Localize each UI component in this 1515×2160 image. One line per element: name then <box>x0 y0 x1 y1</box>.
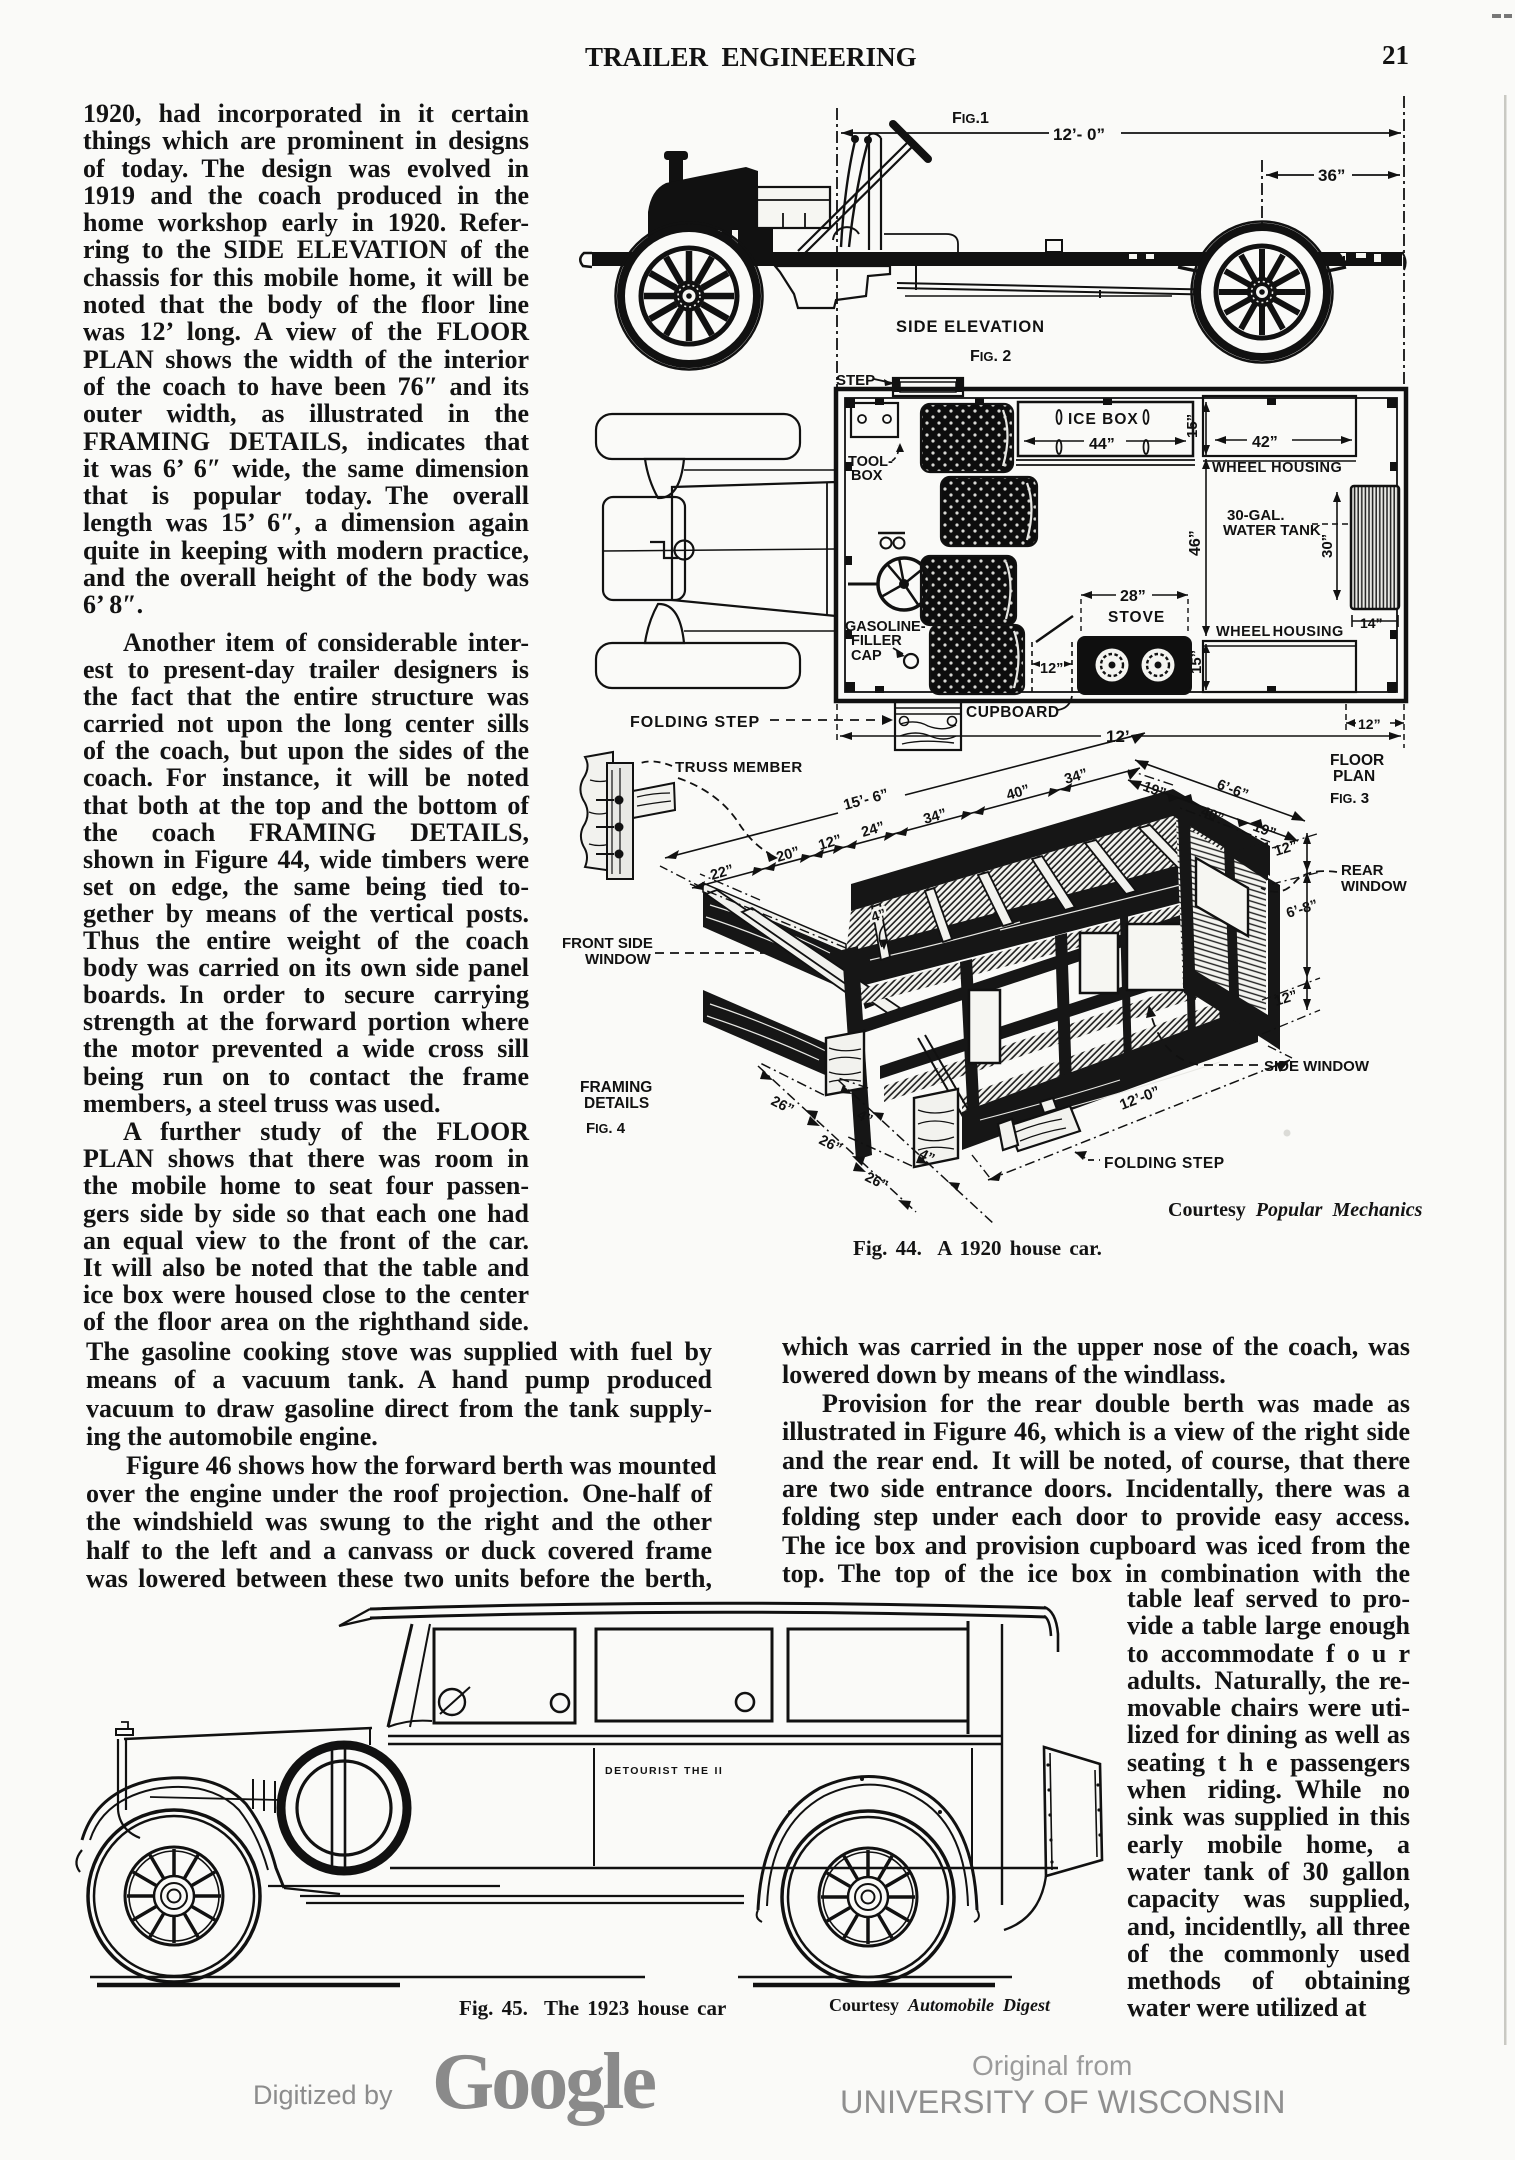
svg-text:15’- 6”: 15’- 6” <box>842 786 891 814</box>
svg-text:15”: 15” <box>1184 414 1201 438</box>
svg-text:44”: 44” <box>1089 436 1115 453</box>
svg-text:12”: 12” <box>1358 716 1381 732</box>
svg-text:DETOURIST THE II: DETOURIST THE II <box>605 1765 723 1777</box>
svg-text:FOLDING STEP: FOLDING STEP <box>1104 1155 1225 1172</box>
svg-text:FILLER: FILLER <box>851 633 902 649</box>
svg-text:WHEEL HOUSING: WHEEL HOUSING <box>1212 460 1342 476</box>
svg-text:15”: 15” <box>1188 650 1205 674</box>
svg-text:36”: 36” <box>1318 166 1345 185</box>
svg-text:CAP: CAP <box>851 648 882 664</box>
svg-text:40”: 40” <box>1005 782 1032 804</box>
svg-text:22”: 22” <box>709 862 736 884</box>
svg-text:20”: 20” <box>775 844 802 866</box>
svg-text:12”: 12” <box>1040 661 1063 677</box>
svg-text:30”: 30” <box>1319 534 1336 558</box>
svg-text:WHEEL HOUSING: WHEEL HOUSING <box>1216 624 1344 640</box>
svg-text:FIG. 3: FIG. 3 <box>1330 790 1369 807</box>
svg-text:42”: 42” <box>1252 434 1278 451</box>
svg-text:WINDOW: WINDOW <box>585 951 652 968</box>
svg-text:CUPBOARD: CUPBOARD <box>966 704 1060 721</box>
svg-text:TRUSS MEMBER: TRUSS MEMBER <box>675 759 803 776</box>
svg-text:26”: 26” <box>862 1169 890 1194</box>
svg-text:FIG. 2: FIG. 2 <box>970 348 1011 365</box>
svg-text:12”: 12” <box>1272 838 1299 860</box>
svg-text:26”: 26” <box>816 1132 844 1157</box>
svg-text:28”: 28” <box>1120 588 1146 605</box>
svg-text:46”: 46” <box>1187 530 1204 556</box>
svg-text:STOVE: STOVE <box>1108 609 1165 626</box>
svg-text:34”: 34” <box>1063 766 1090 788</box>
svg-text:6’-8”: 6’-8” <box>1284 897 1320 922</box>
svg-text:FIG.1: FIG.1 <box>952 110 989 127</box>
svg-text:REAR: REAR <box>1341 862 1384 879</box>
svg-text:BOX: BOX <box>851 468 883 484</box>
svg-text:WATER TANK: WATER TANK <box>1223 522 1321 539</box>
svg-text:6’-6”: 6’-6” <box>1215 777 1251 803</box>
svg-text:SIDE ELEVATION: SIDE ELEVATION <box>896 318 1045 336</box>
svg-text:FIG. 4: FIG. 4 <box>586 1120 626 1137</box>
svg-text:ICE BOX: ICE BOX <box>1068 411 1139 428</box>
svg-text:34”: 34” <box>922 806 949 828</box>
svg-text:PLAN: PLAN <box>1333 768 1375 785</box>
svg-text:12’: 12’ <box>1106 727 1130 746</box>
svg-text:12’- 0”: 12’- 0” <box>1053 125 1105 144</box>
svg-text:STEP: STEP <box>836 372 875 389</box>
svg-text:14”: 14” <box>1360 615 1383 631</box>
svg-text:12”: 12” <box>817 832 844 854</box>
svg-text:FRAMING: FRAMING <box>580 1079 652 1096</box>
svg-text:FLOOR: FLOOR <box>1330 752 1384 769</box>
svg-text:WINDOW: WINDOW <box>1341 878 1408 895</box>
svg-text:FOLDING STEP: FOLDING STEP <box>630 714 760 731</box>
svg-text:FRONT SIDE: FRONT SIDE <box>562 935 653 952</box>
svg-text:DETAILS: DETAILS <box>584 1095 649 1112</box>
